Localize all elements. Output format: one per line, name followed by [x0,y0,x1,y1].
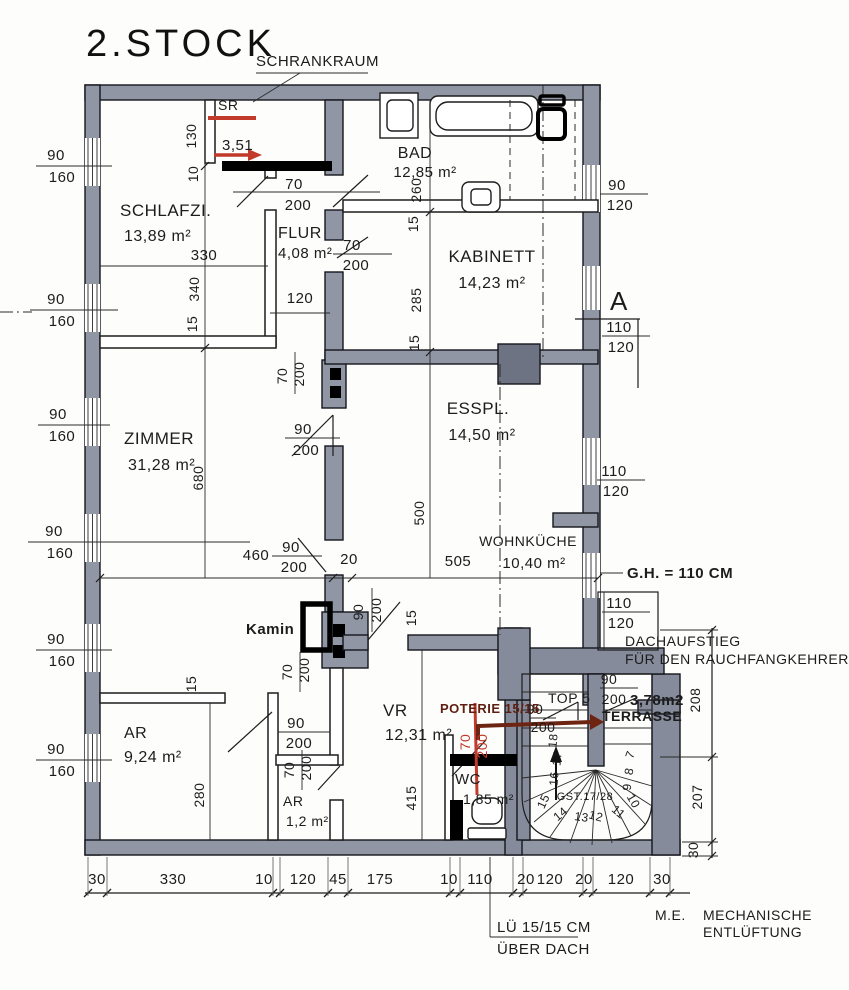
svg-text:10: 10 [255,871,273,888]
svg-text:90: 90 [294,421,312,438]
svg-text:200: 200 [285,197,312,214]
dim-330: 330 [191,247,218,264]
sr-label: SR [218,97,238,113]
dim-340: 340 [186,277,202,302]
dachaufstieg-line2: FÜR DEN RAUCHFANGKEHRER [625,650,849,667]
room-label-kabinett: KABINETT [448,247,535,266]
svg-text:10: 10 [624,791,643,810]
stair-spec-label: GST.17/28 [557,791,613,803]
room-label-wc: WC [455,771,481,788]
svg-text:90: 90 [47,741,65,758]
svg-text:30: 30 [88,871,106,888]
svg-text:120: 120 [608,339,635,356]
svg-text:200: 200 [296,658,312,683]
svg-text:160: 160 [49,428,76,445]
svg-text:160: 160 [47,545,74,562]
door-dim-3-rot: 70 200 [274,362,307,387]
dim-15-b: 15 [405,216,421,233]
floor-plan-page: 2.STOCK SCHRANKRAUM SR 3,51 SCHLAFZI. 13… [0,0,849,990]
svg-text:45: 45 [329,871,347,888]
room-area-bad: 12,85 m² [393,164,456,181]
bathtub [430,96,538,136]
svg-text:90: 90 [608,177,626,194]
door-dim-1: 70 200 [285,176,312,214]
svg-text:110: 110 [467,871,492,888]
svg-text:90: 90 [47,631,65,648]
svg-text:120: 120 [290,871,317,888]
svg-text:200: 200 [298,756,314,781]
svg-text:110: 110 [606,595,631,612]
window-dim-right-3: 110 120 [601,463,629,500]
kamin-label: Kamin [246,621,294,638]
svg-text:70: 70 [457,734,473,751]
room-label-vr: VR [383,701,408,720]
room-label-zimmer: ZIMMER [124,429,194,448]
window-dim-left-5: 90 160 [47,631,75,670]
lue-line2-label: ÜBER DACH [497,940,590,958]
window-left-1 [85,138,100,186]
svg-text:20: 20 [575,871,593,888]
svg-text:7: 7 [622,749,638,761]
svg-text:120: 120 [608,615,635,632]
dim-15-c: 15 [406,335,422,352]
room-area-flur: 4,08 m² [278,245,332,262]
svg-text:200: 200 [343,257,370,274]
svg-text:200: 200 [474,734,490,759]
svg-text:15: 15 [534,792,553,811]
dim-415: 415 [403,786,419,811]
svg-text:12: 12 [587,808,604,825]
dim-680: 680 [190,466,206,491]
window-left-6 [85,734,100,782]
svg-text:90: 90 [282,539,300,556]
svg-text:120: 120 [608,871,635,888]
window-dim-right-4: 110 120 [606,595,634,632]
window-dim-left-3: 90 160 [49,406,76,445]
svg-text:200: 200 [531,719,556,735]
svg-text:11: 11 [609,802,628,821]
svg-text:70: 70 [279,664,295,681]
window-right-3 [583,438,600,485]
svg-text:120: 120 [607,197,634,214]
svg-text:90: 90 [601,671,618,687]
svg-text:90: 90 [45,523,63,540]
svg-text:160: 160 [49,169,76,186]
schrankraum-label: SCHRANKRAUM [256,53,379,70]
sr-length: 3,51 [222,137,253,154]
svg-text:90: 90 [49,406,67,423]
door-dim-8: 90 200 [286,715,313,752]
svg-text:200: 200 [286,735,313,752]
dim-207: 207 [689,785,705,810]
svg-text:330: 330 [160,871,187,888]
room-area-esspl: 14,50 m² [448,427,515,444]
gh-label: G.H. = 110 CM [627,565,733,582]
poterie-label: POTERIE 15/15 [440,701,540,716]
svg-text:90: 90 [47,147,65,164]
svg-text:160: 160 [49,763,76,780]
door-dim-2: 70 200 [343,237,370,274]
svg-text:200: 200 [293,442,320,459]
svg-text:16: 16 [546,771,561,787]
dim-30-right: 30 [685,842,701,859]
window-left-3 [85,398,100,446]
dim-505: 505 [445,553,472,570]
window-dim-left-6: 90 160 [47,741,75,780]
svg-text:70: 70 [281,762,297,779]
dim-20: 20 [340,551,358,568]
dachaufstieg-line1: DACHAUFSTIEG [625,633,741,649]
svg-text:30: 30 [653,871,671,888]
svg-text:13: 13 [573,809,589,825]
section-a-label: A [610,286,628,316]
dim-500: 500 [411,501,427,526]
svg-text:175: 175 [367,871,394,888]
svg-text:120: 120 [537,871,564,888]
dim-130: 130 [183,124,199,149]
wall-kabinett-esspl [325,350,598,364]
dim-15-a: 15 [184,316,200,333]
svg-text:200: 200 [281,559,308,576]
svg-text:18: 18 [545,733,560,749]
window-dim-left-4: 90 160 [45,523,73,562]
top5-label: TOP 5 [548,690,590,706]
bottom-chain-labels: 30 330 10 120 45 175 10 110 20 120 20 12… [88,871,671,888]
sink [380,93,418,138]
svg-text:10: 10 [440,871,458,888]
black-marker-wc-left [450,800,463,840]
window-right-2 [583,266,600,310]
window-dim-left-2: 90 160 [47,291,75,330]
room-area-ar-klein: 1,2 m² [286,813,329,829]
room-label-ar: AR [124,725,147,742]
window-left-4 [85,514,100,562]
dim-15-d: 15 [183,676,199,693]
wall-schlafzi-zimmer [100,336,276,348]
top5-area-label: 3,78m2 [630,692,684,709]
svg-text:200: 200 [291,362,307,387]
room-area-wc: 1,85 m² [463,791,514,807]
wall-flur-left-b [265,210,276,346]
svg-text:90: 90 [287,715,305,732]
dim-285: 285 [408,288,424,313]
window-right-4 [583,553,600,598]
dim-260: 260 [408,178,424,203]
room-label-ar-klein: AR [283,793,303,809]
svg-text:20: 20 [517,871,535,888]
svg-text:9: 9 [620,783,634,791]
dim-208: 208 [687,688,703,713]
wall-sr-left [205,100,215,163]
lue-line1-label: LÜ 15/15 CM [497,918,591,936]
svg-text:160: 160 [49,653,76,670]
svg-text:14: 14 [550,804,570,824]
pillar [498,344,540,384]
wall-wohnkueche [553,513,598,527]
svg-text:110: 110 [601,463,626,480]
svg-text:17: 17 [549,751,564,767]
room-label-bad: BAD [398,145,432,162]
room-area-ar: 9,24 m² [124,749,182,766]
black-marker-bad-large [538,109,565,139]
room-label-esspl: ESSPL. [447,399,510,418]
dim-280: 280 [191,783,207,808]
svg-text:8: 8 [622,767,637,777]
terrasse-label: TERRASSE [602,708,682,724]
svg-text:200: 200 [602,691,627,707]
svg-text:90: 90 [47,291,65,308]
svg-text:120: 120 [603,483,630,500]
entlueftung-label: ENTLÜFTUNG [703,923,802,940]
black-marker-sr [222,161,332,171]
door-dim-7-rot: 70 200 [279,658,312,683]
toilet-bad [462,182,500,212]
window-left-2 [85,284,100,332]
door-dim-4: 90 200 [293,421,320,459]
svg-text:110: 110 [606,319,631,336]
room-label-schlafzi: SCHLAFZI. [120,201,211,220]
room-area-kabinett: 14,23 m² [458,275,525,292]
window-left-5 [85,624,100,672]
dim-15-e: 15 [403,610,419,627]
svg-text:70: 70 [343,237,361,254]
floor-plan-drawing: 2.STOCK SCHRANKRAUM SR 3,51 SCHLAFZI. 13… [0,0,849,990]
room-area-schlafzi: 13,89 m² [124,228,191,245]
me-abbr-label: M.E. [655,907,686,923]
svg-text:90: 90 [350,604,366,621]
svg-text:70: 70 [285,176,303,193]
dim-120-flur: 120 [287,290,314,307]
mechanische-label: MECHANISCHE [703,907,812,923]
dim-460: 460 [243,547,270,564]
window-dim-left-1: 90 160 [47,147,75,186]
svg-text:160: 160 [49,313,76,330]
svg-text:70: 70 [274,368,290,385]
page-title: 2.STOCK [86,23,276,65]
room-area-wohnkueche: 10,40 m² [502,555,565,572]
window-dim-right-2: 110 120 [606,319,634,356]
svg-text:200: 200 [368,598,384,623]
room-area-zimmer: 31,28 m² [128,457,195,474]
room-area-vr: 12,31 m² [385,727,452,744]
window-dim-right-1: 90 120 [607,177,634,214]
dim-10: 10 [185,166,201,183]
room-label-wohnkueche: WOHNKÜCHE [479,532,577,549]
room-label-flur: FLUR [278,225,322,242]
